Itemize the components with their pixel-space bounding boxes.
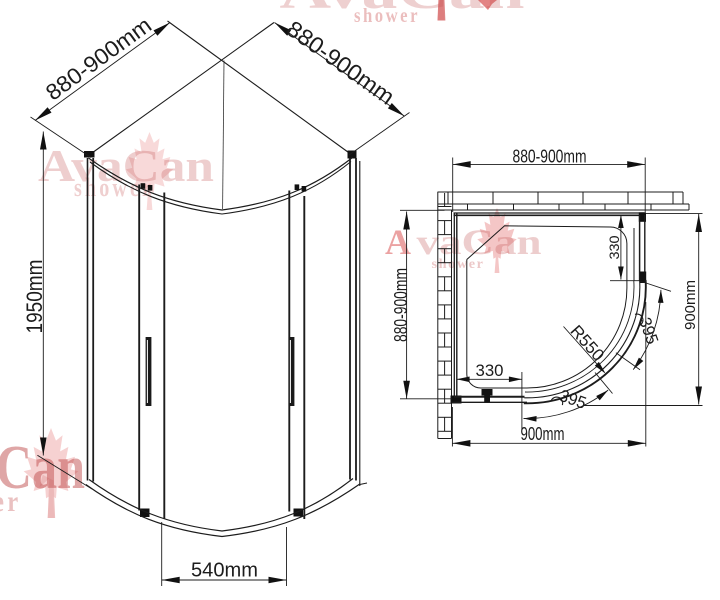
svg-text:880-900mm: 880-900mm [391,268,411,342]
svg-text:540mm: 540mm [191,559,258,582]
svg-text:880-900mm: 880-900mm [282,15,400,109]
svg-text:R550: R550 [567,322,608,365]
svg-text:900mm: 900mm [683,280,699,330]
svg-text:395: 395 [635,315,662,347]
svg-text:shower: shower [354,5,420,27]
svg-text:shower: shower [0,485,22,518]
svg-text:330: 330 [476,361,504,380]
svg-text:900mm: 900mm [521,424,565,444]
svg-text:880-900mm: 880-900mm [41,12,156,105]
svg-text:shower: shower [432,256,485,271]
svg-text:880-900mm: 880-900mm [513,146,587,166]
svg-text:330: 330 [606,235,622,259]
svg-text:1950mm: 1950mm [22,260,47,334]
